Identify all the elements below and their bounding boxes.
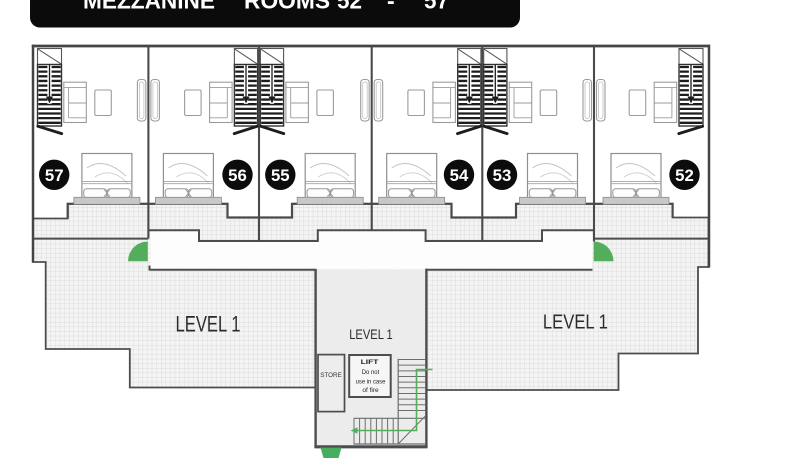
svg-text:-: - bbox=[387, 0, 395, 13]
svg-text:STORE: STORE bbox=[320, 372, 342, 379]
svg-text:use in case: use in case bbox=[356, 378, 386, 385]
svg-text:52: 52 bbox=[675, 166, 694, 185]
svg-text:of fire: of fire bbox=[362, 387, 379, 394]
svg-text:LEVEL 1: LEVEL 1 bbox=[349, 326, 393, 342]
svg-text:55: 55 bbox=[271, 166, 290, 185]
svg-text:ROOMS: ROOMS bbox=[244, 0, 330, 13]
svg-text:LIFT: LIFT bbox=[361, 359, 380, 366]
svg-text:57: 57 bbox=[45, 166, 64, 185]
svg-text:MEZZANINE: MEZZANINE bbox=[83, 0, 215, 13]
svg-text:LEVEL 1: LEVEL 1 bbox=[543, 312, 608, 334]
svg-text:53: 53 bbox=[493, 166, 512, 185]
svg-text:52: 52 bbox=[337, 0, 362, 13]
svg-text:LEVEL 1: LEVEL 1 bbox=[176, 311, 241, 336]
svg-text:54: 54 bbox=[450, 166, 469, 185]
svg-text:57: 57 bbox=[424, 0, 449, 13]
svg-text:Do not: Do not bbox=[362, 369, 380, 376]
svg-text:56: 56 bbox=[228, 166, 247, 185]
